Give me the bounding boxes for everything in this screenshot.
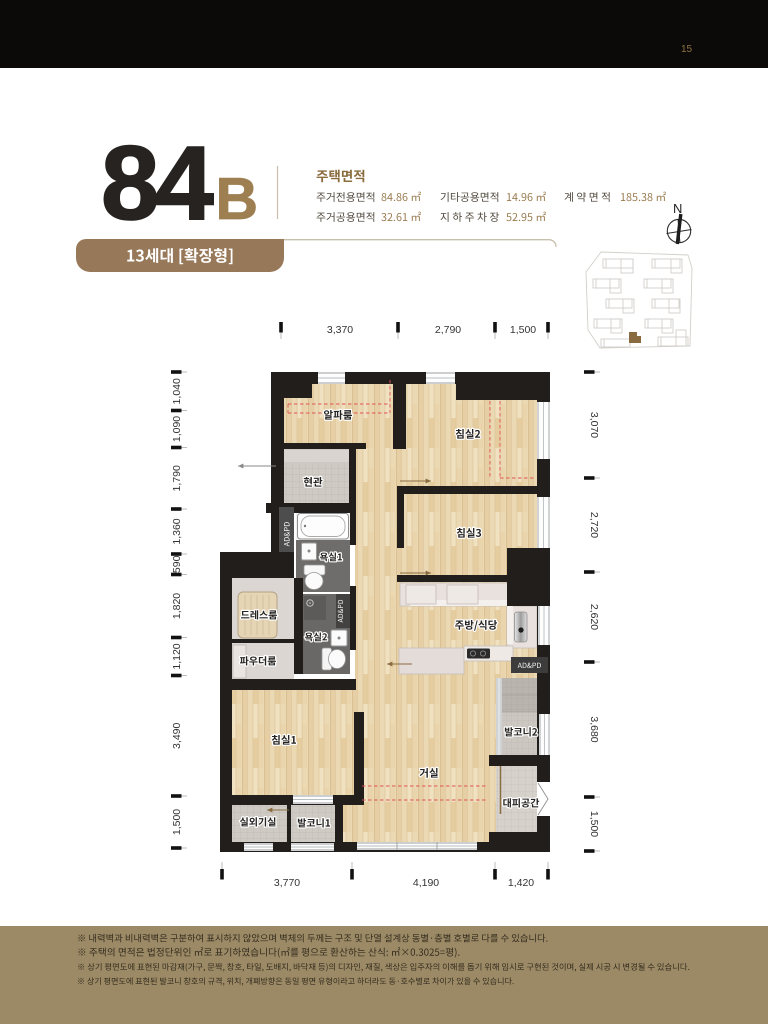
svg-text:1,790: 1,790 [171,465,183,491]
svg-text:3,370: 3,370 [327,324,353,336]
svg-text:1,040: 1,040 [171,378,183,404]
svg-text:B: B [216,166,259,232]
svg-text:1,360: 1,360 [171,518,183,544]
svg-text:1,120: 1,120 [171,643,183,669]
svg-text:1,500: 1,500 [171,809,183,835]
svg-text:2,790: 2,790 [435,324,461,336]
svg-text:3,770: 3,770 [274,877,300,889]
svg-text:1,500: 1,500 [510,324,536,336]
svg-text:3,680: 3,680 [588,716,600,742]
svg-text:1,090: 1,090 [171,416,183,442]
svg-text:3,070: 3,070 [588,412,600,438]
svg-text:1,820: 1,820 [171,593,183,619]
svg-text:3,490: 3,490 [171,723,183,749]
svg-text:1,420: 1,420 [508,877,534,889]
svg-text:1,500: 1,500 [588,811,600,837]
svg-text:N: N [673,201,682,216]
svg-text:4,190: 4,190 [413,877,439,889]
svg-text:590: 590 [171,555,183,573]
svg-text:2,720: 2,720 [588,512,600,538]
svg-text:2,620: 2,620 [588,604,600,630]
svg-text:84: 84 [101,125,213,242]
